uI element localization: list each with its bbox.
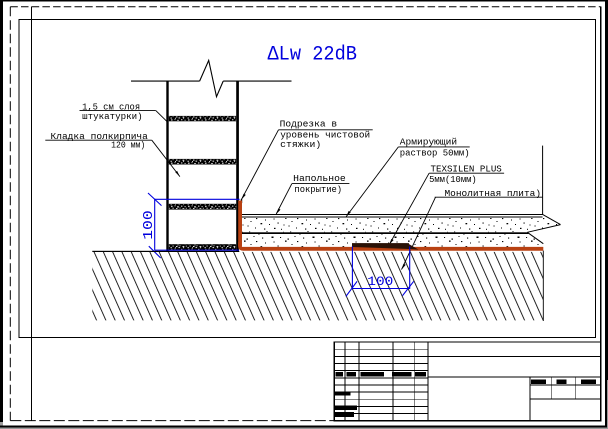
svg-text:100: 100: [142, 210, 157, 240]
svg-text:5мм(10мм): 5мм(10мм): [429, 174, 477, 185]
svg-text:штукатурки): штукатурки): [82, 111, 143, 122]
svg-text:Напольное: Напольное: [293, 173, 346, 184]
svg-text:ΔLw 22dB: ΔLw 22dB: [268, 43, 358, 66]
svg-text:стяжки): стяжки): [280, 139, 321, 150]
svg-text:раствор 50мм): раствор 50мм): [400, 147, 470, 158]
svg-text:Армирующий: Армирующий: [400, 137, 457, 148]
svg-text:100: 100: [367, 274, 393, 289]
svg-text:Подрезка в: Подрезка в: [280, 119, 338, 130]
svg-text:покрытие): покрытие): [294, 184, 342, 195]
svg-text:120 мм): 120 мм): [111, 140, 145, 151]
